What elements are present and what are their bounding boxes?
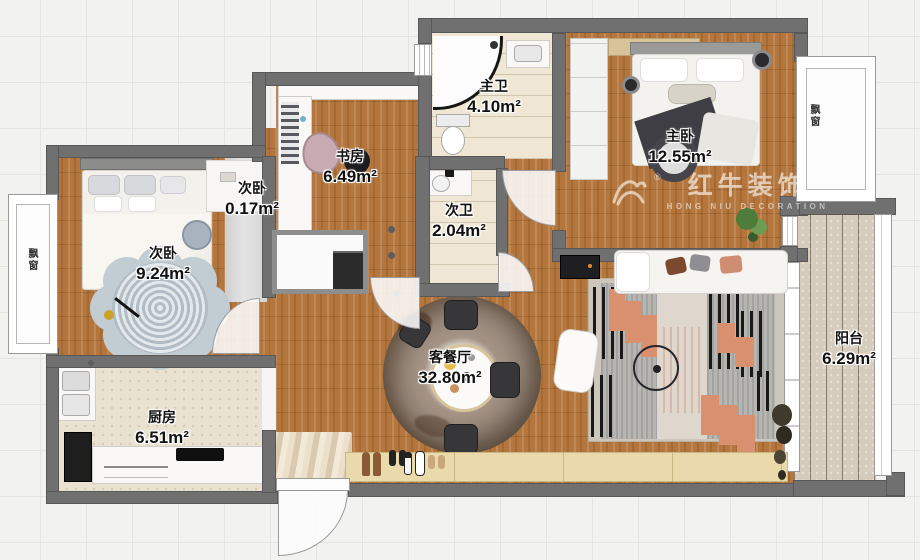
rug-black-stripes [757,371,773,411]
bay-window-right-label: 飘窗 [806,104,821,128]
pillow [696,58,744,82]
room-name: 厨房 [148,407,176,427]
desk-accessory [300,116,306,122]
wall [415,156,430,297]
tv-indicator [588,264,592,268]
room-label-living-dining: 客餐厅 32.80m² [418,347,481,388]
vanity-basin [432,175,450,192]
toilet-bowl [441,126,465,155]
room-label-closet: 次卧 0.17m² [225,178,279,219]
room-area: 6.49m² [323,167,377,187]
balcony-window [782,216,798,246]
room-name: 次卧 [238,178,266,198]
sink-basin [62,394,90,416]
balcony-railing [874,214,892,476]
tv [560,255,600,279]
room-name: 主卫 [480,76,508,96]
sofa-pillow [689,254,711,273]
entry-rug [272,432,352,482]
kitchen-doorway [262,368,276,430]
room-label-kitchen: 厨房 6.51m² [135,407,189,448]
slippers [428,455,435,469]
sneakers [404,452,412,475]
room-name: 主卧 [666,126,694,146]
wall [418,18,808,33]
room-name: 书房 [336,146,364,166]
room-name: 阳台 [835,328,863,348]
plant-tall [772,404,792,426]
wardrobe [570,38,608,180]
stove [176,448,224,461]
wall [46,348,59,504]
bath-window [414,44,432,76]
wall [262,430,276,493]
bed-headboard [80,158,214,170]
rug-salmon-steps [609,289,625,331]
room-name: 次卧 [149,243,177,263]
wall [415,283,510,297]
island-cabinet [272,230,368,294]
wall [46,355,276,368]
spotlight-dot [88,360,94,366]
wall [348,483,796,497]
spotlight-dot [388,252,395,259]
wall [46,145,266,158]
geometric-rug [588,278,786,442]
room-name: 次卫 [445,200,473,220]
room-label-balcony: 阳台 6.29m² [822,328,876,369]
dining-chair [490,362,520,398]
pillow [640,58,688,82]
fridge [64,432,92,482]
entry-door-leaf [276,478,350,491]
room-area: 6.29m² [822,349,876,369]
rug-salmon-steps [717,323,735,353]
wall [46,491,278,504]
rug-salmon-steps [701,395,719,435]
room-area: 6.51m² [135,428,189,448]
entry-door-swing [278,490,348,556]
rug-circle-dot [653,365,661,373]
room-label-second-bedroom: 次卧 9.24m² [136,243,190,284]
gold-lamp [104,310,114,320]
sink-basin [62,371,90,391]
pillow [88,175,120,195]
bedside-lamp [622,76,640,94]
shoes-black [389,450,396,466]
room-label-study: 书房 6.49m² [323,146,377,187]
wall [418,74,432,158]
sofa-pillow [719,255,743,274]
pillow [124,175,156,195]
small-appliance [104,466,168,478]
bookshelf [281,102,299,164]
shower-head [490,41,498,49]
rug-black-stripes [741,311,767,377]
bath-sink-basin [514,45,542,62]
spotlight-dot [388,226,395,233]
room-area: 12.55m² [648,147,711,167]
bay-window-right-inner [806,68,866,190]
room-area: 9.24m² [136,264,190,284]
floor-plan: 飘窗 飘窗 主卫 4.10m² 次卫 2.04m² 书房 6.49m² 次卧 0… [0,0,920,560]
wall [252,72,432,86]
room-area: 32.80m² [418,368,481,388]
room-area: 4.10m² [467,97,521,117]
rug-black-stripes [591,375,615,437]
dining-chair [444,300,478,330]
bay-window-left-label: 飘窗 [24,248,39,272]
room-label-second-bath: 次卫 2.04m² [432,200,486,241]
room-name: 客餐厅 [429,347,471,367]
room-area: 0.17m² [225,199,279,219]
dining-chair [444,424,478,454]
room-label-master-bath: 主卫 4.10m² [467,76,521,117]
boots [362,452,370,476]
sofa-chaise [616,252,650,292]
bay-window-left-inner [16,204,50,344]
pillow [128,196,156,212]
wall [46,145,59,200]
island-dark-section [333,251,363,289]
room-area: 2.04m² [432,221,486,241]
wall [418,18,432,44]
plant [736,208,758,230]
pillow [94,196,122,212]
bedside-lamp [752,50,772,70]
wall [552,33,566,172]
balcony-door-window [784,262,800,472]
pillow [160,176,186,194]
room-label-master-bedroom: 主卧 12.55m² [648,126,711,167]
